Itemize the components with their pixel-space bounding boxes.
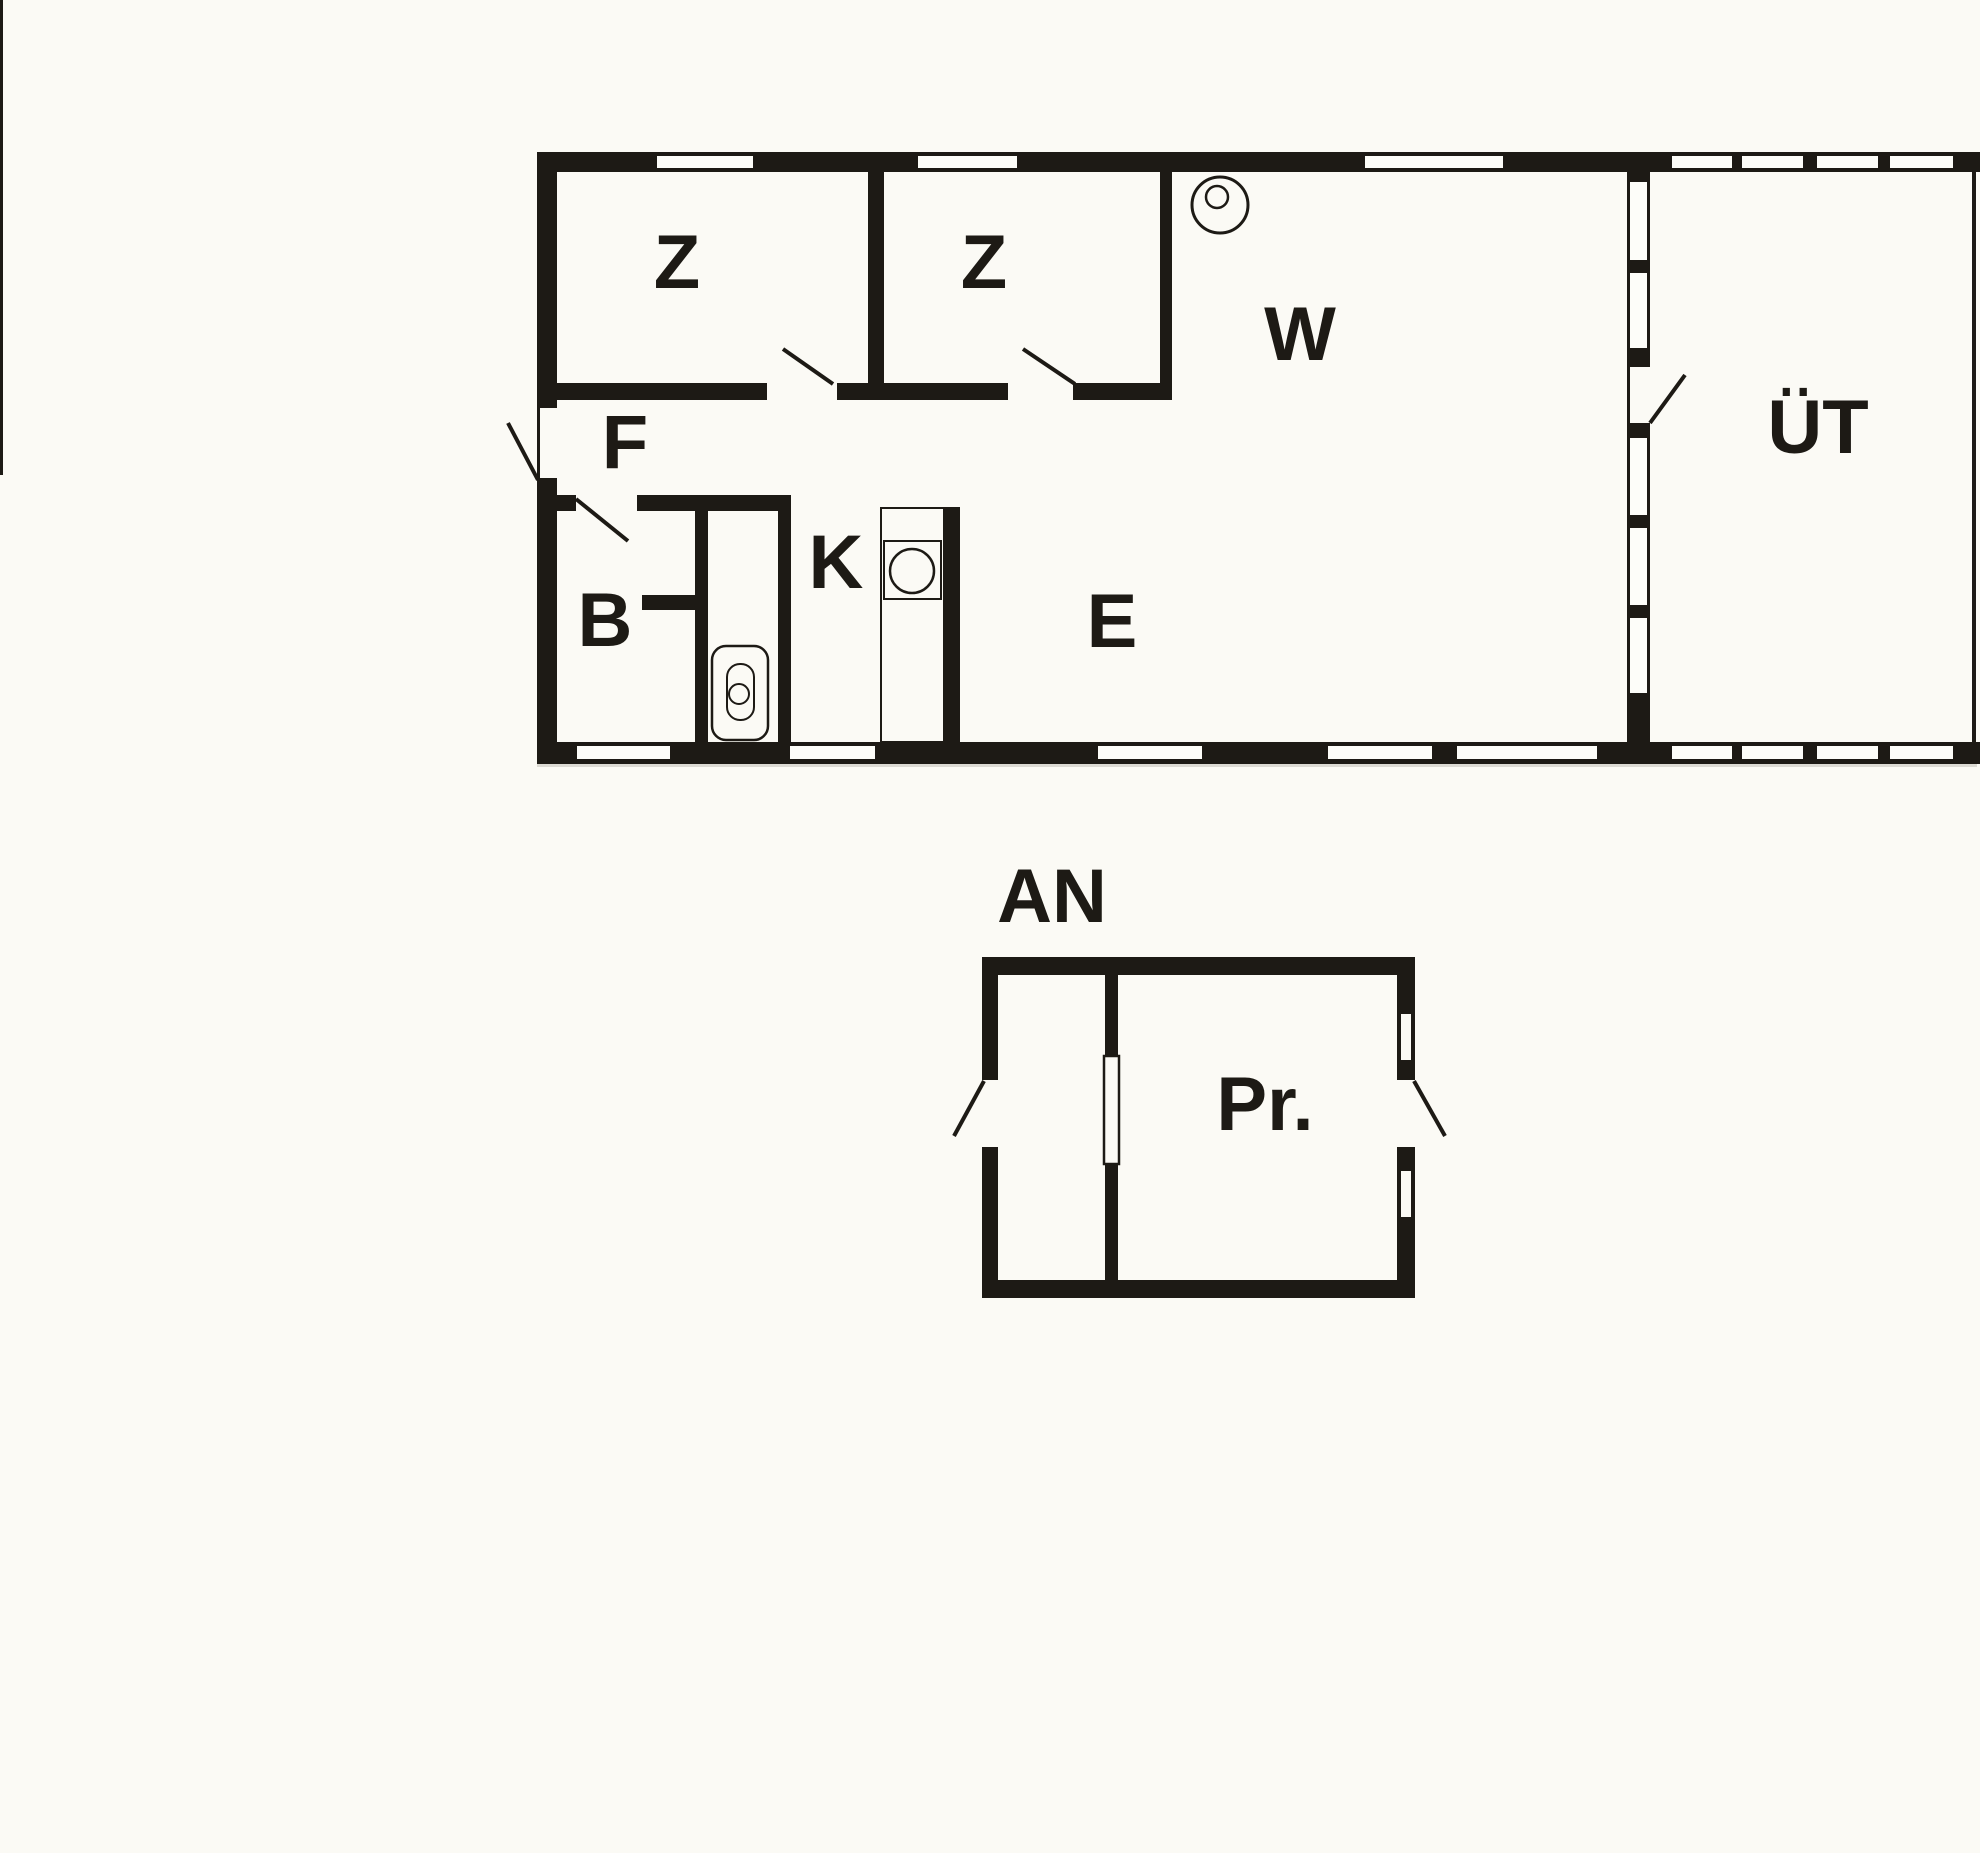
annex-title-label: AN — [997, 859, 1107, 935]
room-label-kitchen: K — [809, 525, 864, 601]
room-label-bedroom2: Z — [961, 225, 1007, 301]
bedroom2-door-swing — [1023, 349, 1075, 384]
bath-door-swing — [576, 499, 628, 541]
room-label-annex-room: Pr. — [1216, 1067, 1313, 1143]
room-label-terrace: ÜT — [1767, 390, 1868, 466]
terrace-door-swing — [1650, 375, 1685, 423]
sink-icon — [890, 549, 934, 593]
floor-plan-canvas: Z Z W ÜT F B K E AN Pr. — [0, 0, 1980, 1853]
room-label-bathroom: B — [578, 583, 633, 659]
room-label-hallway: F — [602, 405, 648, 481]
toilet-icon — [712, 646, 768, 740]
room-label-living: W — [1264, 297, 1336, 373]
annex-right-door-swing — [1414, 1081, 1445, 1136]
annex-left-door-swing — [954, 1081, 984, 1136]
annex-door-leaf-icon — [1104, 1056, 1119, 1164]
stove-flue-icon — [1206, 186, 1228, 208]
toilet-drain-icon — [729, 684, 749, 704]
bedroom1-door-swing — [783, 349, 833, 384]
room-label-bedroom1: Z — [654, 225, 700, 301]
room-label-dining: E — [1087, 584, 1138, 660]
toilet-bowl-icon — [727, 664, 754, 720]
entrance-door-swing — [508, 423, 538, 480]
